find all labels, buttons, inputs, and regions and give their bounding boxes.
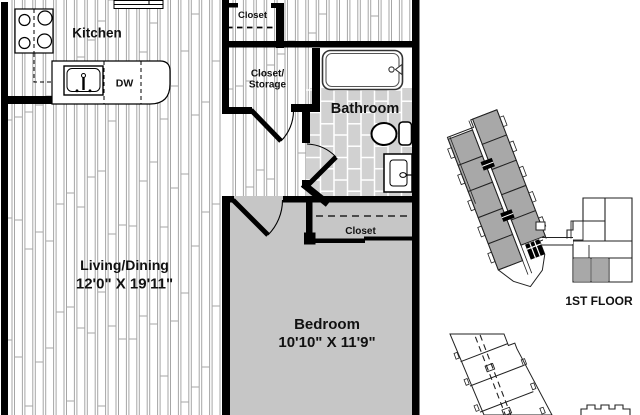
svg-text:1ST FLOOR: 1ST FLOOR [565,294,633,308]
svg-text:12'0" X 19'11": 12'0" X 19'11" [76,276,173,293]
svg-text:Closet/: Closet/ [251,69,285,80]
svg-text:Bathroom: Bathroom [331,101,399,117]
svg-text:Closet: Closet [238,10,268,21]
svg-text:DW: DW [116,78,134,90]
svg-text:10'10" X 11'9": 10'10" X 11'9" [278,334,375,351]
svg-text:Kitchen: Kitchen [72,26,122,41]
svg-text:Storage: Storage [249,80,287,91]
svg-text:Living/Dining: Living/Dining [80,257,169,273]
svg-text:Closet: Closet [345,226,376,237]
svg-text:Bedroom: Bedroom [294,316,360,333]
